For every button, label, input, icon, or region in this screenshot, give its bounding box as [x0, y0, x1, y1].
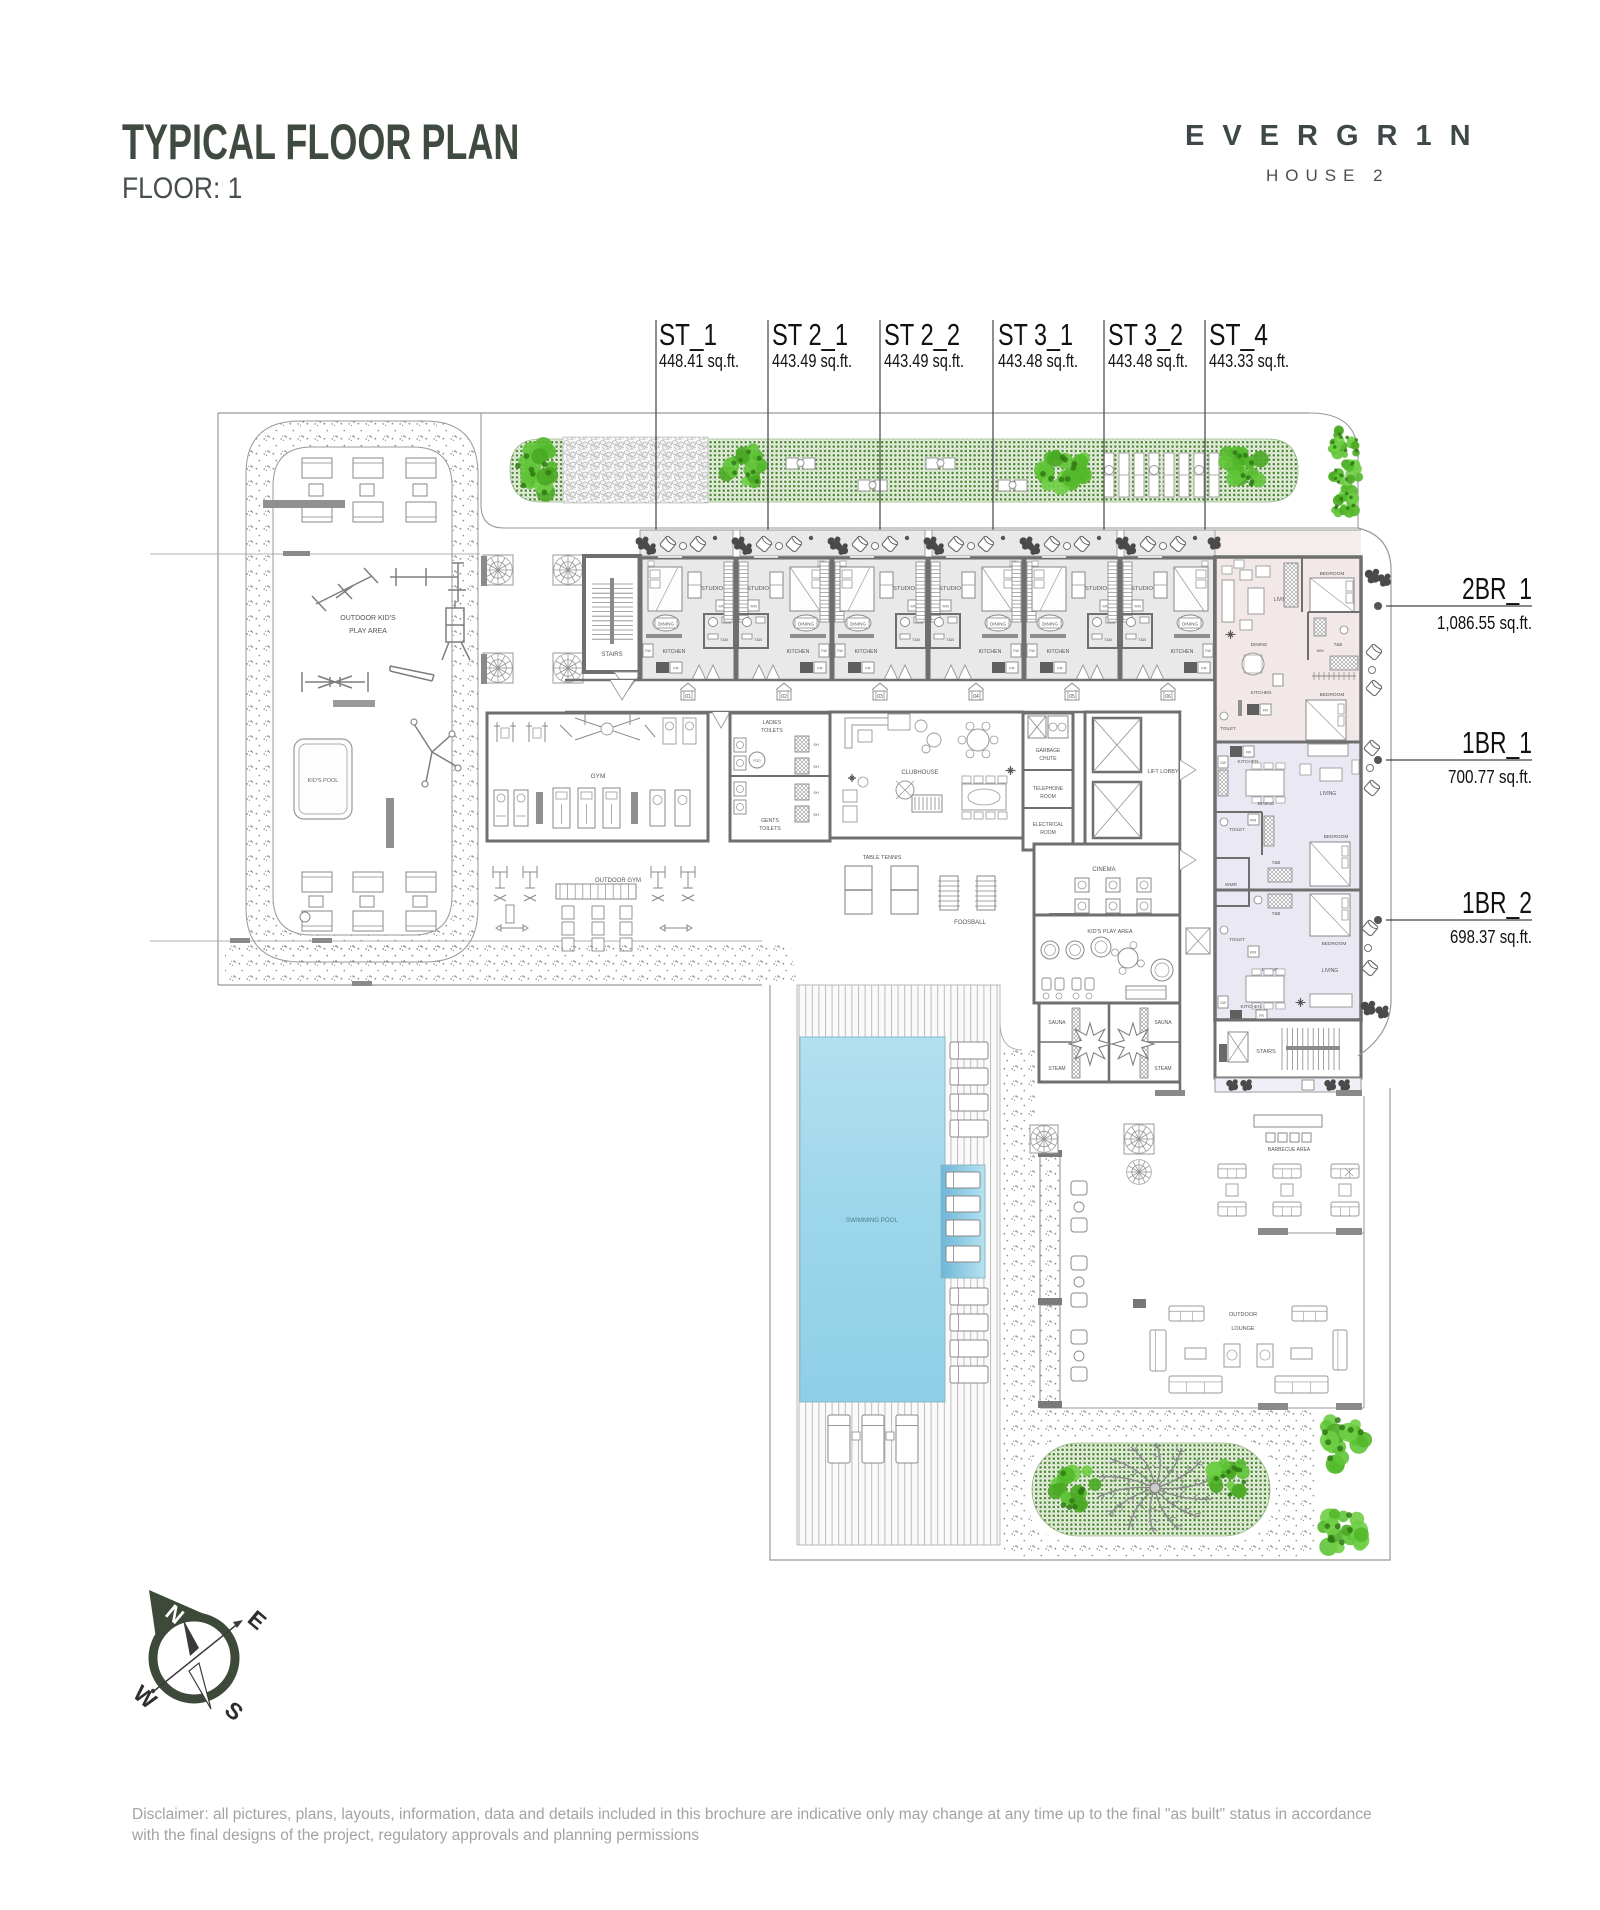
- svg-text:TOILETS: TOILETS: [759, 826, 781, 832]
- svg-text:02: 02: [781, 694, 787, 700]
- svg-text:KITCHEN: KITCHEN: [855, 649, 878, 655]
- svg-text:GENTS: GENTS: [761, 818, 779, 824]
- svg-text:T&B: T&B: [912, 637, 920, 642]
- svg-text:KITCHEN: KITCHEN: [1250, 690, 1272, 696]
- svg-text:WMR: WMR: [1225, 882, 1238, 888]
- svg-text:DW: DW: [1029, 649, 1036, 653]
- svg-text:DINING: DINING: [1182, 622, 1199, 627]
- svg-text:ST 3_1: ST 3_1: [998, 317, 1073, 352]
- svg-text:PLAY AREA: PLAY AREA: [349, 628, 387, 635]
- svg-text:WM: WM: [1250, 951, 1256, 955]
- svg-text:OUTDOOR KID'S: OUTDOOR KID'S: [340, 615, 396, 622]
- svg-text:LOUNGE: LOUNGE: [1231, 1326, 1255, 1332]
- svg-text:FR: FR: [673, 666, 678, 671]
- svg-text:FR: FR: [1263, 709, 1268, 713]
- svg-text:TELEPHONE: TELEPHONE: [1033, 786, 1064, 792]
- svg-text:443.49 sq.ft.: 443.49 sq.ft.: [884, 351, 964, 371]
- svg-text:LIFT LOBBY: LIFT LOBBY: [1147, 769, 1178, 775]
- svg-text:STUDIO: STUDIO: [701, 586, 723, 592]
- svg-text:03: 03: [877, 694, 883, 700]
- svg-text:FR: FR: [1201, 666, 1206, 671]
- svg-text:T&B: T&B: [1104, 637, 1112, 642]
- svg-text:TOILET: TOILET: [1229, 827, 1245, 832]
- svg-text:CLUBHOUSE: CLUBHOUSE: [901, 770, 938, 776]
- svg-text:LADIES: LADIES: [763, 720, 782, 726]
- svg-text:SH: SH: [813, 790, 819, 795]
- svg-text:DW: DW: [1220, 1001, 1227, 1005]
- svg-text:LIVING: LIVING: [1320, 791, 1337, 797]
- svg-text:FR: FR: [817, 666, 822, 671]
- svg-text:TOILETS: TOILETS: [761, 728, 783, 734]
- svg-text:S: S: [220, 1696, 248, 1726]
- svg-text:FOOSBALL: FOOSBALL: [954, 920, 986, 926]
- svg-text:WM: WM: [1134, 605, 1140, 609]
- svg-text:WM: WM: [1250, 819, 1256, 823]
- svg-text:T&B: T&B: [1272, 860, 1281, 865]
- svg-text:SAUNA: SAUNA: [1048, 1020, 1066, 1026]
- svg-text:05: 05: [1069, 694, 1075, 700]
- svg-text:SH: SH: [813, 764, 819, 769]
- svg-text:T&B: T&B: [1334, 642, 1343, 647]
- svg-text:T&B: T&B: [754, 637, 762, 642]
- svg-text:ST 2_1: ST 2_1: [772, 317, 848, 352]
- svg-text:FR: FR: [865, 666, 870, 671]
- svg-text:ELECTRICAL: ELECTRICAL: [1033, 822, 1064, 828]
- svg-text:FR: FR: [1057, 666, 1062, 671]
- svg-text:DINING: DINING: [1042, 622, 1059, 627]
- svg-text:DW: DW: [837, 649, 844, 653]
- svg-text:WM: WM: [942, 605, 948, 609]
- svg-text:SAUNA: SAUNA: [1154, 1020, 1172, 1026]
- svg-text:STAIRS: STAIRS: [601, 652, 622, 658]
- svg-text:1BR_1: 1BR_1: [1462, 725, 1532, 760]
- svg-text:BEDROOM: BEDROOM: [1320, 692, 1345, 698]
- svg-text:POD: POD: [753, 759, 761, 763]
- svg-text:WM: WM: [1316, 648, 1323, 653]
- svg-text:ROOM: ROOM: [1040, 794, 1056, 800]
- svg-text:KITCHEN: KITCHEN: [663, 649, 686, 655]
- svg-text:DW: DW: [645, 649, 652, 653]
- svg-text:DINING: DINING: [1251, 642, 1268, 648]
- svg-text:1BR_2: 1BR_2: [1462, 885, 1532, 920]
- svg-text:STUDIO: STUDIO: [939, 586, 961, 592]
- svg-text:T&B: T&B: [720, 637, 728, 642]
- svg-text:01: 01: [685, 694, 691, 700]
- svg-text:KITCHEN: KITCHEN: [1240, 1004, 1262, 1010]
- svg-text:2BR_1: 2BR_1: [1462, 571, 1532, 606]
- svg-text:BEDROOM: BEDROOM: [1322, 941, 1347, 947]
- svg-text:KID'S POOL: KID'S POOL: [308, 778, 339, 784]
- svg-text:E: E: [243, 1605, 271, 1635]
- svg-text:OUTDOOR: OUTDOOR: [1229, 1312, 1257, 1318]
- svg-text:FR: FR: [1246, 751, 1251, 755]
- svg-text:STUDIO: STUDIO: [893, 586, 915, 592]
- svg-text:DINING: DINING: [990, 622, 1007, 627]
- svg-text:443.33 sq.ft.: 443.33 sq.ft.: [1209, 351, 1289, 371]
- svg-text:BEDROOM: BEDROOM: [1320, 571, 1345, 577]
- svg-text:CINEMA: CINEMA: [1092, 867, 1115, 873]
- svg-text:700.77 sq.ft.: 700.77 sq.ft.: [1448, 767, 1532, 787]
- svg-text:DINING: DINING: [798, 622, 815, 627]
- svg-text:KID'S PLAY AREA: KID'S PLAY AREA: [1087, 929, 1133, 935]
- svg-text:BARBECUE AREA: BARBECUE AREA: [1268, 1147, 1311, 1153]
- svg-text:448.41 sq.ft.: 448.41 sq.ft.: [659, 351, 739, 371]
- svg-text:STUDIO: STUDIO: [1085, 586, 1107, 592]
- svg-text:DW: DW: [1013, 649, 1020, 653]
- svg-text:TABLE TENNIS: TABLE TENNIS: [863, 855, 902, 861]
- svg-text:ST_1: ST_1: [659, 317, 717, 352]
- svg-text:04: 04: [973, 694, 979, 700]
- svg-text:TOILET: TOILET: [1229, 937, 1245, 942]
- svg-text:BEDROOM: BEDROOM: [1324, 834, 1349, 840]
- svg-text:STUDIO: STUDIO: [1131, 586, 1153, 592]
- svg-text:T&B: T&B: [946, 637, 954, 642]
- svg-text:T&B: T&B: [1272, 911, 1281, 916]
- svg-text:443.48 sq.ft.: 443.48 sq.ft.: [1108, 351, 1188, 371]
- svg-text:FR: FR: [1009, 666, 1014, 671]
- svg-text:SH: SH: [813, 812, 819, 817]
- svg-text:LIVING: LIVING: [1322, 968, 1339, 974]
- svg-text:SWIMMING POOL: SWIMMING POOL: [846, 1217, 898, 1224]
- svg-text:W: W: [128, 1680, 162, 1714]
- svg-text:1,086.55 sq.ft.: 1,086.55 sq.ft.: [1437, 613, 1532, 633]
- svg-text:DW: DW: [1220, 761, 1227, 765]
- svg-text:GYM: GYM: [591, 773, 606, 780]
- svg-text:CHUTE: CHUTE: [1039, 756, 1057, 762]
- svg-text:DINING: DINING: [850, 622, 867, 627]
- svg-text:WM: WM: [750, 605, 756, 609]
- svg-text:ST_4: ST_4: [1209, 317, 1268, 352]
- svg-text:KITCHEN: KITCHEN: [979, 649, 1002, 655]
- svg-text:DW: DW: [1205, 649, 1212, 653]
- svg-text:KITCHEN: KITCHEN: [787, 649, 810, 655]
- svg-text:SH: SH: [813, 742, 819, 747]
- svg-text:T&B: T&B: [1138, 637, 1146, 642]
- svg-text:STUDIO: STUDIO: [747, 586, 769, 592]
- svg-text:DINING: DINING: [1258, 801, 1275, 807]
- svg-text:TOILET: TOILET: [1220, 726, 1236, 731]
- svg-text:698.37 sq.ft.: 698.37 sq.ft.: [1450, 927, 1532, 947]
- svg-text:KITCHEN: KITCHEN: [1171, 649, 1194, 655]
- svg-text:443.49 sq.ft.: 443.49 sq.ft.: [772, 351, 852, 371]
- svg-text:ROOM: ROOM: [1040, 830, 1056, 836]
- svg-text:STEAM: STEAM: [1154, 1066, 1171, 1072]
- svg-text:ST 2_2: ST 2_2: [884, 317, 960, 352]
- svg-text:443.48 sq.ft.: 443.48 sq.ft.: [998, 351, 1078, 371]
- svg-text:STEAM: STEAM: [1048, 1066, 1065, 1072]
- svg-text:ST 3_2: ST 3_2: [1108, 317, 1183, 352]
- svg-text:GARBAGE: GARBAGE: [1036, 748, 1061, 754]
- svg-text:OUTDOOR GYM: OUTDOOR GYM: [595, 878, 641, 884]
- svg-text:DW: DW: [821, 649, 828, 653]
- svg-text:DINING: DINING: [658, 622, 675, 627]
- svg-text:FR: FR: [1259, 1014, 1264, 1018]
- svg-text:STAIRS: STAIRS: [1256, 1049, 1276, 1055]
- svg-text:06: 06: [1165, 694, 1171, 700]
- svg-text:KITCHEN: KITCHEN: [1047, 649, 1070, 655]
